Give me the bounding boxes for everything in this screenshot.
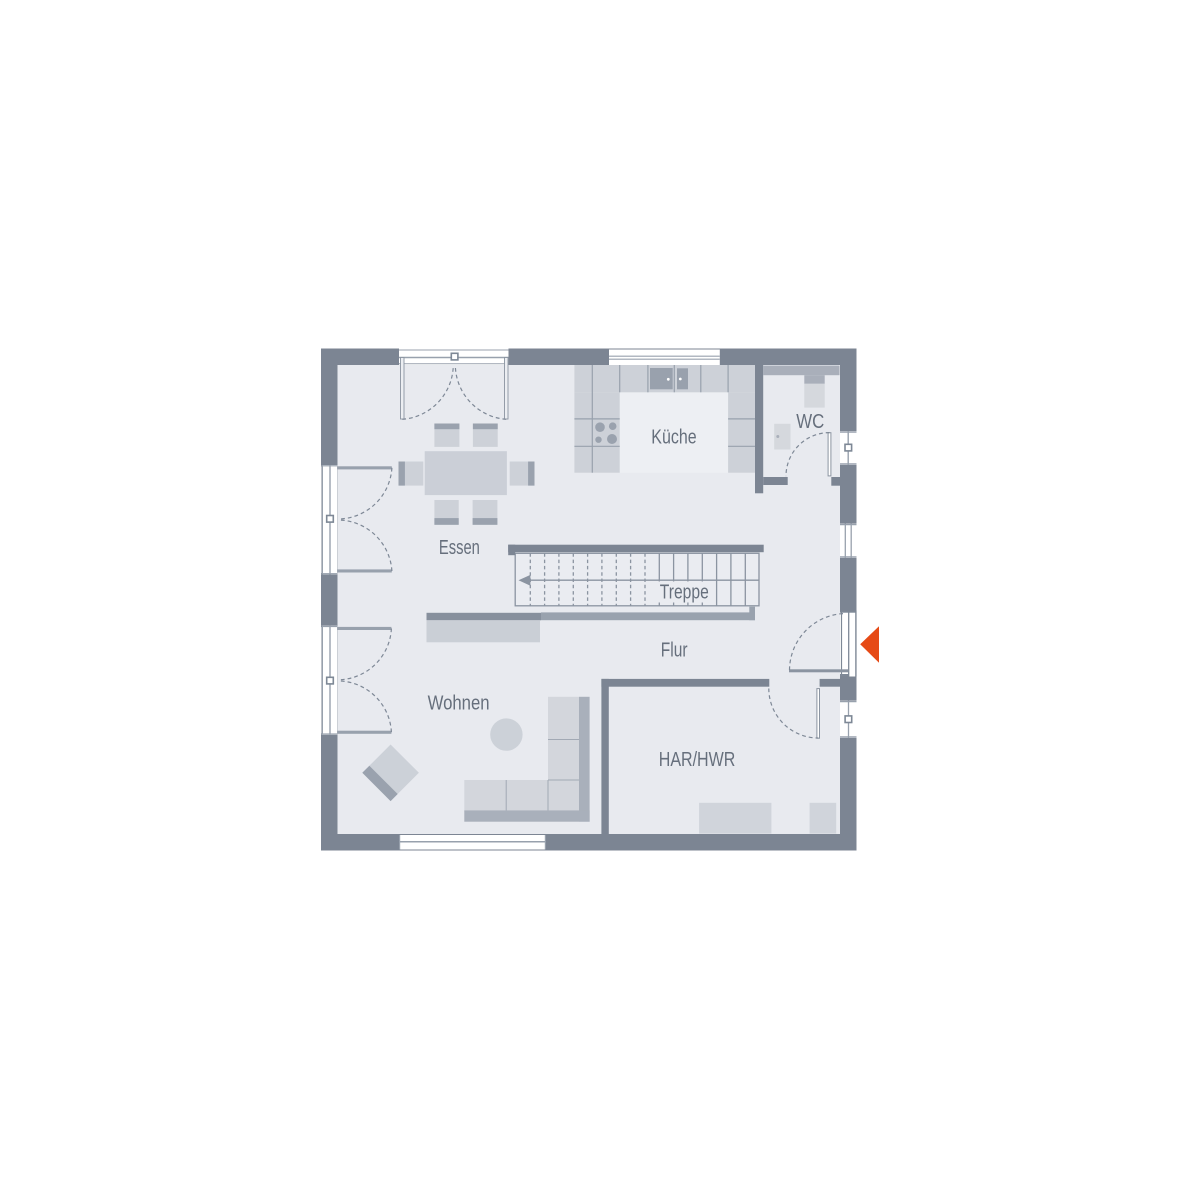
svg-text:Treppe: Treppe (660, 582, 709, 604)
svg-text:Küche: Küche (651, 427, 696, 449)
svg-text:Flur: Flur (661, 639, 688, 661)
svg-text:HAR/HWR: HAR/HWR (659, 749, 736, 771)
svg-text:Essen: Essen (439, 537, 480, 559)
svg-text:WC: WC (796, 411, 824, 433)
svg-text:Wohnen: Wohnen (428, 692, 490, 714)
